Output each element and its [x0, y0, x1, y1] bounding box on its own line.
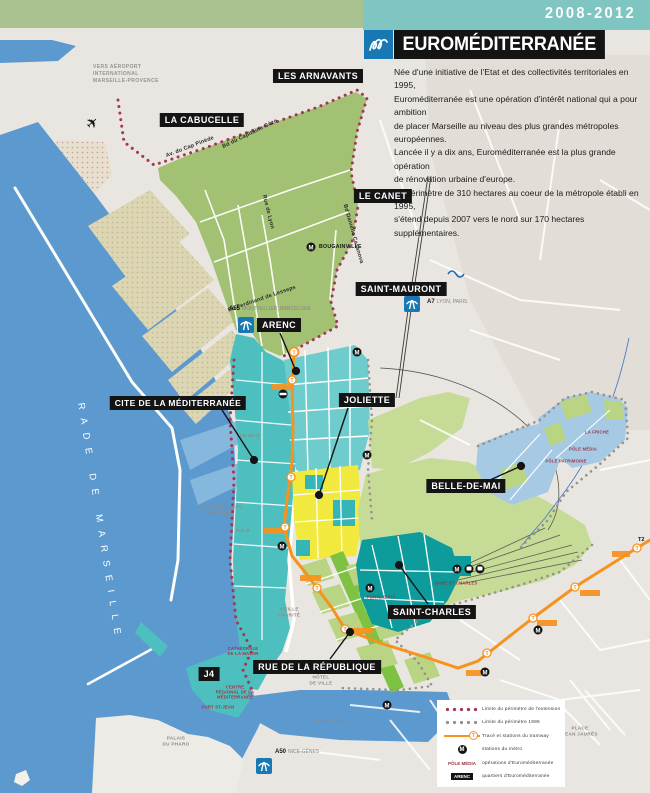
svg-text:M: M	[365, 453, 370, 459]
legend-row-perimeter-extension: Limite du périmètre de l'extension	[442, 705, 561, 713]
legend-swatch-extension-dots	[444, 707, 480, 712]
legend-label: stations du métro	[482, 747, 522, 752]
operation-label-pole-patrimoine: PÔLE PATRIMOINE	[545, 459, 586, 464]
legend-row-tramway: T Tracé et stations du tramway	[442, 732, 561, 740]
svg-text:M: M	[280, 544, 285, 550]
district-label-belle-de-mai: BELLE-DE-MAI	[426, 479, 505, 493]
highway-code-a7: A7	[427, 299, 435, 305]
place-label-terrasses-du-port: LES TERRASSES DU PORT	[200, 504, 242, 515]
svg-text:M: M	[309, 245, 314, 251]
metro-station-label-bougainville: BOUGAINVILLE	[319, 244, 362, 250]
tram-line-t2-label: T2	[638, 537, 644, 543]
euromediterranee-logo	[364, 30, 393, 59]
legend-sample-quartier: ARENC	[451, 773, 473, 780]
tram-terminus: T	[290, 348, 299, 357]
tram-station-icon: T	[469, 731, 478, 740]
place-label-hotel-de-ville: HÔTEL DE VILLE	[309, 674, 332, 685]
highway-code-a55: A55	[229, 306, 240, 312]
district-label-j4: J4	[199, 667, 220, 681]
operation-label-centre-regional: CENTRE RÉGIONAL DE LA MÉDITERRANÉE	[216, 685, 255, 700]
place-label-vieille-charite: VIEILLE CHARITÉ	[278, 606, 301, 617]
header-band-green	[0, 0, 363, 28]
airport-note: VERS AÉROPORT INTERNATIONAL MARSEILLE-PR…	[93, 64, 159, 85]
operation-label-cathedrale-major: CATHÉDRALE DE LA MAJOR	[228, 646, 259, 656]
operation-label-fort-st-jean: FORT ST-JEAN	[202, 705, 235, 710]
district-label-cite-de-la-mediterranee: CITE DE LA MÉDITERRANÉE	[110, 396, 246, 410]
highway-label-a55: A55MONTPELLIER, BARCELONE	[229, 306, 311, 312]
place-label-place-jean-jaures: PLACE JEAN JAURÈS	[562, 725, 597, 736]
district-label-le-canet: LE CANET	[354, 189, 412, 203]
district-label-la-cabucelle: LA CABUCELLE	[160, 113, 244, 127]
legend-row-operations: PÔLE MÉDIA opérations d'Euroméditerranée	[442, 759, 561, 767]
page-title: EUROMÉDITERRANÉE	[394, 30, 605, 59]
svg-text:M: M	[355, 350, 360, 356]
operation-label-la-friche: LA FRICHE	[585, 430, 609, 435]
legend-label: Limite du périmètre 1995	[482, 720, 540, 725]
intro-paragraph: Née d'une initiative de l'Etat et des co…	[394, 66, 648, 240]
no-entry-icon	[279, 390, 288, 399]
highway-code-a50: A50	[275, 749, 286, 755]
svg-text:M: M	[483, 670, 488, 676]
district-label-saint-charles: SAINT-CHARLES	[388, 605, 476, 619]
legend-row-quartiers: ARENC quartiers d'Euroméditerranée	[442, 773, 561, 781]
a55-motorway-icon	[238, 317, 254, 333]
legend-sample-operation: PÔLE MÉDIA	[448, 761, 476, 766]
place-label-palais-du-pharo: PALAIS DU PHARO	[163, 735, 190, 746]
legend-row-metro: M stations du métro	[442, 746, 561, 754]
place-label-pam: P.A.M	[236, 528, 250, 534]
place-label-vieux-port: VIEUX-PORT	[314, 718, 345, 724]
svg-text:M: M	[536, 628, 541, 634]
highway-dest-a7: LYON, PARIS	[437, 299, 468, 305]
metro-station-icon: M	[458, 745, 467, 754]
district-label-arenc: ARENC	[257, 318, 301, 332]
highway-label-a50: A50NICE-GÊNES	[275, 749, 319, 755]
district-label-saint-mauront: SAINT-MAURONT	[356, 282, 447, 296]
euromediterranee-map-poster: T T T T T T T T T T M M M M M M M M M	[0, 0, 650, 793]
district-label-les-arnavants: LES ARNAVANTS	[273, 69, 363, 83]
a7-motorway-icon	[404, 296, 420, 312]
operation-label-pole-media: PÔLE MÉDIA	[569, 447, 597, 452]
legend-swatch-1995-dots	[444, 720, 480, 725]
zone-arenc-blocks	[284, 345, 370, 475]
legend-label: Limite du périmètre de l'extension	[482, 707, 560, 712]
highway-label-a7: A7LYON, PARIS	[427, 299, 467, 305]
legend-label: opérations d'Euroméditerranée	[482, 761, 554, 766]
highway-dest-a55: MONTPELLIER, BARCELONE	[242, 306, 311, 312]
legend-row-perimeter-1995: Limite du périmètre 1995	[442, 719, 561, 727]
wave-logo-icon	[364, 30, 393, 59]
district-label-rue-de-la-republique: RUE DE LA RÉPUBLIQUE	[253, 660, 381, 674]
period-label: 2008-2012	[545, 5, 636, 23]
legend-swatch-tram-line: T	[444, 735, 480, 738]
operation-label-gare-st-charles: GARE ST CHARLES	[434, 581, 477, 586]
highway-dest-a50: NICE-GÊNES	[288, 749, 319, 755]
district-label-joliette: JOLIETTE	[339, 393, 395, 407]
place-label-le-silo: LE SILO	[240, 433, 260, 439]
a50-motorway-icon	[256, 758, 272, 774]
operation-label-porte-daix: PORTE D'AIX	[367, 595, 396, 600]
legend-label: Tracé et stations du tramway	[482, 734, 549, 739]
svg-text:M: M	[368, 586, 373, 592]
legend-label: quartiers d'Euroméditerranée	[482, 774, 550, 779]
map-legend: Limite du périmètre de l'extension Limit…	[437, 700, 565, 787]
svg-text:M: M	[385, 703, 390, 709]
svg-text:M: M	[455, 567, 460, 573]
